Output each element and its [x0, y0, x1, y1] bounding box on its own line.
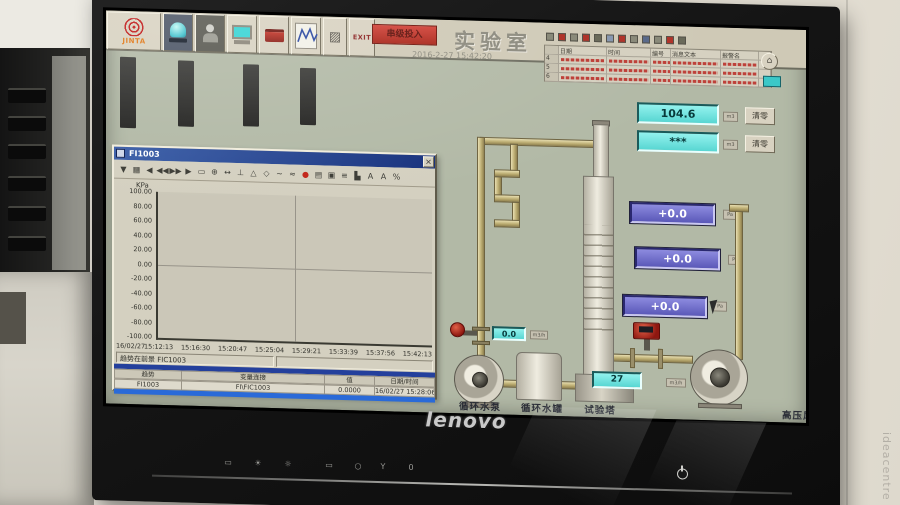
floor-object [0, 292, 26, 344]
trend-toolbar-icon-18[interactable]: ▙ [351, 171, 364, 180]
alarm-toolbar-icon-5[interactable] [606, 34, 614, 42]
trend-toolbar-icon-10[interactable]: △ [247, 168, 260, 177]
y-tick-9: -80.00 [131, 319, 152, 326]
y-tick-4: 20.00 [133, 246, 152, 253]
jinta-logo-text: JINTA [122, 36, 145, 45]
trend-toolbar-icon-15[interactable]: ▤ [312, 170, 325, 179]
trend-toolbar-icon-6[interactable]: ▭ [195, 166, 208, 175]
trend-toolbar-icon-21[interactable]: % [390, 172, 403, 181]
trend-plot-area[interactable] [156, 192, 432, 348]
operator-button[interactable] [195, 14, 225, 53]
alarm-toolbar-icon-8[interactable] [642, 35, 650, 43]
monitor-button-brightness-down[interactable]: ☼ [277, 459, 299, 469]
y-tick-10: -100.00 [127, 333, 152, 340]
jinta-logo-button[interactable]: JINTA [107, 11, 161, 51]
trend-window: FI1003 × ▼▦◀◀◀▶▶▶▭⊕↔⊥△◇∼≈●▤▣≡▙AA% KPa 10… [112, 145, 437, 400]
workstation-icon [232, 24, 252, 39]
x-tick-4: 15:29:21 [292, 347, 321, 356]
alarm-toolbar-icon-1[interactable] [558, 33, 566, 41]
flow-unit-1: m3/h [530, 330, 548, 340]
y-tick-1: 80.00 [133, 203, 152, 210]
alarm-col-message: 消息文本 [671, 49, 721, 58]
meter-stem [644, 338, 650, 350]
rack-module [8, 206, 46, 221]
trend-toolbar-icon-4[interactable]: ▶▶ [169, 166, 182, 175]
trend-chart-icon [295, 23, 317, 50]
y-tick-2: 60.00 [133, 217, 152, 224]
trend-toolbar-icon-20[interactable]: A [377, 171, 390, 180]
monitor-button-volume[interactable]: Y [372, 462, 394, 472]
x-tick-3: 15:25:04 [255, 346, 284, 355]
pipe [510, 144, 518, 172]
dark-bar [120, 57, 136, 128]
tower-neck [593, 124, 609, 180]
totalizer-unit-2: m3 [723, 140, 738, 150]
monitor-button-exit[interactable]: 0 [400, 463, 422, 473]
pipe [480, 137, 602, 148]
x-tick-2: 15:20:47 [218, 345, 247, 354]
operator-icon [206, 24, 214, 32]
trend-toolbar-icon-5[interactable]: ▶ [182, 166, 195, 175]
y-axis-ticks: 100.0080.0060.0040.0020.000.00-20.00-40.… [116, 188, 152, 341]
workstation-button[interactable] [227, 15, 257, 54]
y-tick-8: -60.00 [131, 304, 152, 311]
trend-toolbar-icon-12[interactable]: ∼ [273, 169, 286, 178]
cascade-on-button[interactable]: 串级投入 [372, 24, 437, 46]
trend-window-icon [116, 149, 125, 158]
totalizer-display-1: 104.6 [637, 102, 719, 125]
screen: JINTA ▨ [106, 10, 806, 423]
alarm-col-number: 编号 [651, 49, 671, 58]
alarm-toolbar-icon-6[interactable] [618, 35, 626, 43]
monitor-button-menu[interactable]: ▭ [318, 460, 340, 470]
monitor-button-input[interactable]: ▭ [217, 457, 239, 467]
trend-toolbar-icon-14[interactable]: ● [299, 169, 312, 178]
pump-hub [472, 372, 488, 388]
trend-toolbar-icon-17[interactable]: ≡ [338, 170, 351, 179]
blower-hub [710, 367, 730, 388]
trend-toolbar-icon-9[interactable]: ⊥ [234, 167, 247, 176]
dark-bar [300, 68, 316, 125]
jinta-logo-icon [121, 17, 147, 36]
pressure-display-2: +0.0 [635, 247, 720, 270]
x-tick-0: 15:12:13 [144, 342, 173, 351]
lenovo-logo: lenovo [392, 406, 540, 434]
home-button[interactable]: ⌂ [761, 53, 778, 70]
monitor-button-row: ▭ ☀ ☼ ▭ ○ Y 0 [202, 457, 722, 486]
pipe-flange [472, 327, 490, 332]
x-tick-1: 15:16:30 [181, 343, 210, 352]
teal-indicator-button[interactable] [763, 76, 781, 88]
alarm-table: 日期 时间 编号 消息文本 报警名 4 5 [544, 45, 772, 88]
alarm-corner-cell [545, 46, 559, 54]
flow-transmitter-icon[interactable] [450, 322, 465, 337]
report-icon: ▨ [329, 29, 341, 44]
alarm-toolbar-icon-7[interactable] [630, 35, 638, 43]
trend-toolbar-icon-11[interactable]: ◇ [260, 168, 273, 177]
pressure-display-3: +0.0 [623, 295, 707, 318]
y-tick-7: -40.00 [131, 290, 152, 297]
x-axis-date: 16/02/27 [116, 342, 145, 351]
y-tick-0: 100.00 [129, 188, 152, 195]
pipe [735, 210, 743, 360]
rack-side-panel [52, 56, 86, 270]
alarm-col-time: 时间 [607, 47, 651, 56]
trend-toolbar-icon-8[interactable]: ↔ [221, 167, 234, 176]
rack-module [8, 236, 46, 251]
clear-button-1[interactable]: 清零 [745, 107, 775, 125]
rack-module [8, 116, 46, 131]
label-hp-blower: 高压风机 [772, 407, 806, 423]
coil-pipe [494, 219, 520, 228]
alarm-toolbar-icon-10[interactable] [666, 36, 674, 44]
blower-foot [698, 403, 742, 409]
alarm-panel: 日期 时间 编号 消息文本 报警名 4 5 [544, 25, 772, 89]
instrument-stem [463, 330, 477, 335]
close-icon[interactable]: × [423, 156, 434, 167]
flow-display-2: 27 [592, 371, 642, 389]
totalizer-display-2: *** [637, 130, 719, 153]
meter-readout [639, 326, 653, 332]
alarm-lamp-icon [170, 22, 186, 37]
trend-toolbar-icon-0[interactable]: ▼ [117, 164, 130, 173]
alarm-col-date: 日期 [559, 46, 607, 55]
flow-unit-2: m3/h [666, 378, 686, 388]
pipe-flange [472, 341, 490, 346]
x-tick-6: 15:37:56 [366, 349, 395, 358]
rack-module [8, 88, 46, 103]
device-button[interactable] [259, 16, 289, 55]
y-tick-6: -20.00 [131, 275, 152, 282]
meter-flange [658, 349, 663, 369]
trend-toolbar-icon-19[interactable]: A [364, 171, 377, 180]
dark-bar [178, 60, 194, 126]
pressure-display-1: +0.0 [630, 202, 715, 225]
trend-toolbar-icon-16[interactable]: ▣ [325, 170, 338, 179]
monitor-button-auto[interactable]: ○ [347, 461, 369, 471]
flow-display-1: 0.0 [492, 326, 526, 341]
y-tick-3: 40.00 [133, 232, 152, 239]
tower-trays [584, 225, 613, 336]
alarm-toolbar-icon-11[interactable] [678, 36, 686, 44]
ideacentre-label: ideacentre [880, 432, 893, 505]
trend-toolbar-icon-7[interactable]: ⊕ [208, 167, 221, 176]
clear-button-2[interactable]: 清零 [745, 135, 775, 153]
water-tank[interactable] [516, 352, 562, 401]
alarm-toolbar-icon-3[interactable] [582, 34, 590, 42]
wall-corner [846, 0, 848, 505]
photo-scene: ideacentre JINTA [0, 0, 900, 505]
alarm-toolbar-icon-0[interactable] [546, 33, 554, 41]
alarm-col-name: 报警名 [721, 51, 759, 60]
report-button[interactable]: ▨ [323, 17, 347, 56]
rack-module [8, 176, 46, 191]
trend-chart-button[interactable] [291, 17, 321, 56]
alarm-toolbar-icon-9[interactable] [654, 36, 662, 44]
dark-bar [243, 64, 259, 126]
alarm-toolbar-icon-4[interactable] [594, 34, 602, 42]
test-tower[interactable] [583, 176, 614, 381]
pipe-cap [729, 204, 749, 213]
trend-window-title: FI1003 [129, 149, 160, 159]
y-tick-5: 0.00 [138, 261, 152, 268]
pipe [613, 354, 693, 364]
trend-toolbar-icon-13[interactable]: ≈ [286, 169, 299, 178]
meter-flange [630, 348, 635, 368]
totalizer-unit-1: m3 [723, 112, 738, 122]
trend-toolbar-icon-2[interactable]: ◀ [143, 165, 156, 174]
red-device-icon [265, 28, 284, 42]
alarm-toolbar-icon-2[interactable] [570, 33, 578, 41]
x-tick-5: 15:33:39 [329, 348, 358, 357]
monitor: JINTA ▨ [92, 0, 840, 505]
alarm-lamp-button[interactable] [163, 13, 193, 52]
x-tick-7: 15:42:13 [403, 350, 432, 359]
monitor-button-brightness-up[interactable]: ☀ [247, 458, 269, 468]
rack-module [8, 144, 46, 159]
trend-toolbar-icon-1[interactable]: ▦ [130, 165, 143, 174]
trend-toolbar-icon-3[interactable]: ◀◀ [156, 165, 169, 174]
